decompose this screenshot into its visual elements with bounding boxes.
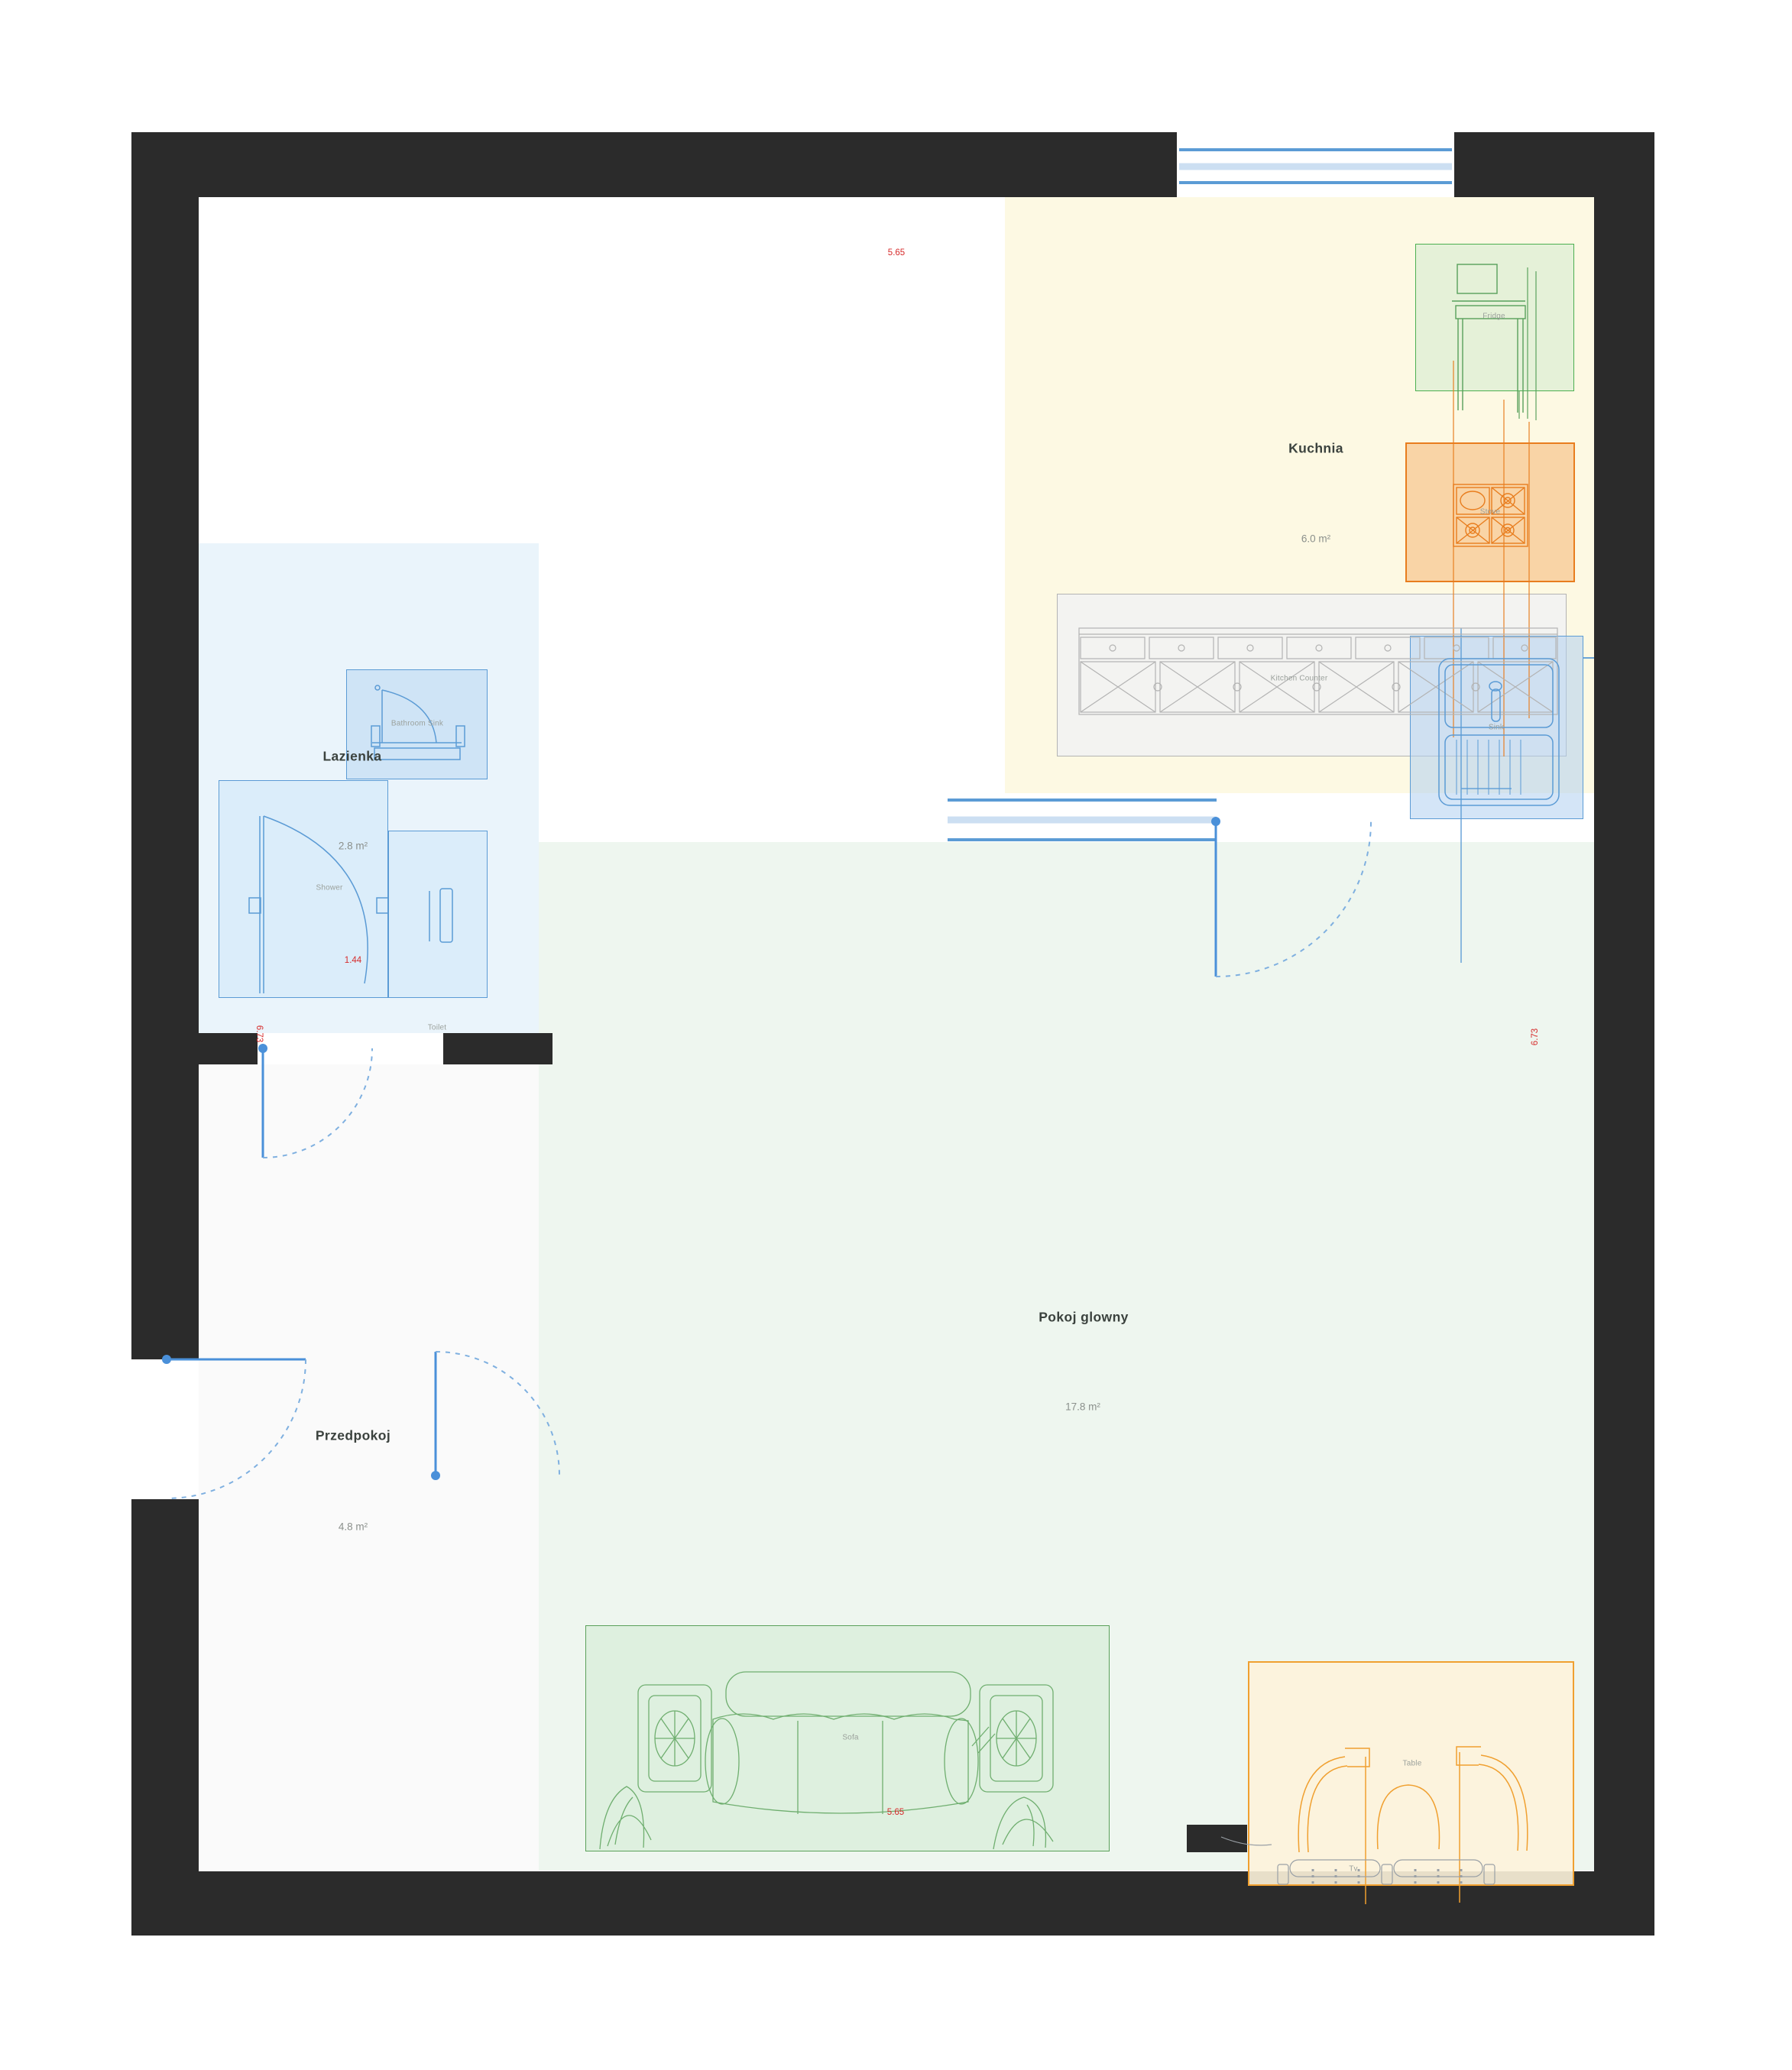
fridge-label: Fridge [1483,313,1505,321]
wall-left-upper [131,132,199,1359]
living-area-label: 17.8 m² [1065,1401,1100,1413]
top-window-gap [1177,132,1454,197]
dim-bathroom-width: 1.44 [345,956,361,965]
sofa-label: Sofa [842,1734,858,1742]
hallway-area-label: 4.8 m² [339,1521,368,1533]
bathroom-name-label: Lazienka [322,749,381,765]
stove-label: Stove [1480,508,1501,517]
room-hallway[interactable] [199,1064,539,1871]
wall-bathroom-right-seg [443,1033,553,1064]
dim-top-width: 5.65 [888,248,905,258]
toilet-box[interactable] [388,831,488,998]
sink-label: Sink [1489,724,1504,732]
wall-right [1594,132,1654,1936]
dim-left-height: 6.73 [254,1025,264,1042]
kitchen-name-label: Kuchnia [1288,441,1343,457]
hallway-name-label: Przedpokoj [316,1428,390,1444]
table-box[interactable] [1248,1661,1574,1886]
tv-label: Tv [1349,1865,1358,1874]
dim-bottom-width: 5.65 [887,1808,904,1817]
living-name-label: Pokoj glowny [1039,1310,1129,1326]
bathroom-area-label: 2.8 m² [339,841,368,852]
floor-plan: Kuchnia 6.0 m² Lazienka 2.8 m² Przedpoko… [0,0,1792,2070]
wall-bathroom-left-seg [199,1033,258,1064]
table-label: Table [1403,1760,1422,1768]
toilet-label: Toilet [428,1024,447,1032]
wall-left-lower [131,1499,199,1936]
dim-right-height: 6.73 [1531,1029,1540,1045]
counter-label: Kitchen Counter [1271,675,1328,683]
shower-box[interactable] [219,780,388,998]
shower-label: Shower [316,884,342,892]
wall-stub-living [1187,1825,1247,1852]
kitchen-area-label: 6.0 m² [1301,533,1330,545]
bathroom-sink-label: Bathroom Sink [391,720,443,728]
